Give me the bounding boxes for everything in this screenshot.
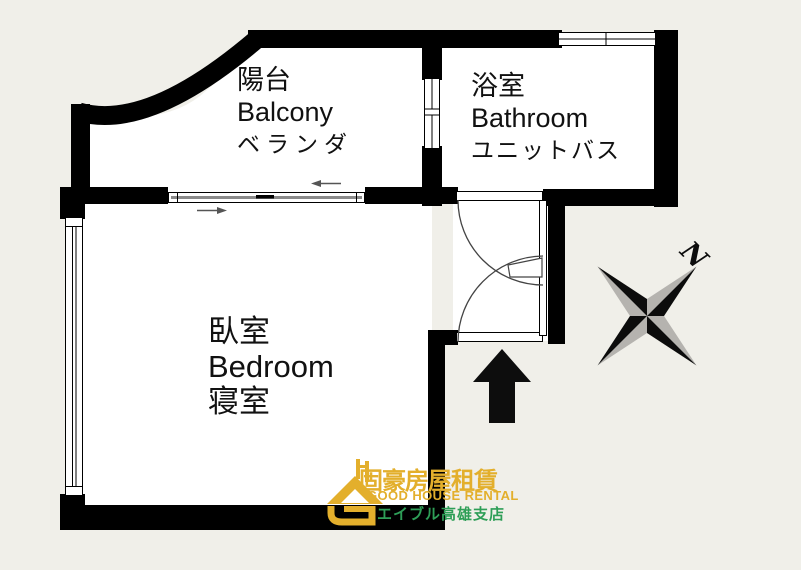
wall-right-bathroom (654, 30, 678, 207)
balcony-label: 陽台 Balcony ベランダ (237, 64, 353, 160)
entrance-arrow-icon (473, 349, 531, 423)
bathroom-top-window-icon (558, 33, 656, 46)
bedroom-label: 臥室 Bedroom 寝室 (208, 314, 334, 419)
compass-icon: N (598, 235, 715, 366)
bathroom-name-en: Bathroom (471, 102, 621, 134)
bedroom-name-zh: 臥室 (208, 314, 334, 349)
logo-branch-ja: エイブル高雄支店 (377, 503, 505, 524)
bathroom-label: 浴室 Bathroom ユニットバス (471, 70, 621, 166)
wall-entry-right (548, 189, 565, 344)
balcony-bathroom-window-icon (425, 79, 440, 149)
wall-balcony-bedroom-right (365, 187, 458, 204)
bedroom-left-window-icon (66, 218, 83, 496)
balcony-name-en: Balcony (237, 96, 353, 128)
entrance-door-threshold (457, 333, 543, 342)
bedroom-name-ja: 寝室 (208, 384, 334, 419)
balcony-name-zh: 陽台 (237, 64, 353, 96)
floor-plan: N 陽台 Balcony ベランダ 浴室 Bathroom ユニットバス 臥室 … (0, 0, 801, 570)
compass-north-label: N (673, 235, 714, 276)
wall-bedroom-left-bottom (60, 494, 85, 530)
bathroom-name-ja: ユニットバス (471, 134, 621, 166)
bathroom-name-zh: 浴室 (471, 70, 621, 102)
bedroom-name-en: Bedroom (208, 349, 334, 384)
logo-title-en: GOOD HOUSE RENTAL (367, 488, 519, 503)
balcony-sliding-door-icon (169, 193, 365, 203)
bathroom-door-threshold (457, 192, 543, 201)
wall-top (248, 30, 562, 48)
wall-bedroom-left-top (60, 187, 85, 219)
wall-divider-balcony-bathroom-top (422, 40, 442, 80)
balcony-name-ja: ベランダ (237, 128, 353, 160)
